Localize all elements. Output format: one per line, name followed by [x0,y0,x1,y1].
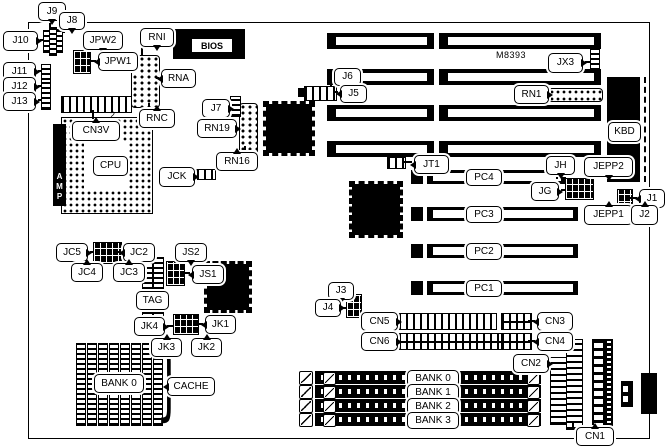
label-jpw2: JPW2 [83,31,123,50]
label-jc4: JC4 [71,263,103,282]
pc3-slot [427,207,578,221]
simm3-left-clip [323,400,336,413]
isa-slot-3-right [439,105,601,121]
label-jk2: JK2 [191,338,222,357]
pc2-slot-label: PC2 [466,243,502,260]
amp-socket-bar: AMP [53,124,66,206]
label-j7: J7 [202,99,230,118]
pc2-slot-cap [411,244,423,258]
label-j6: J6 [334,68,361,86]
cache-chip-1 [76,343,86,426]
label-jck: JCK [159,167,195,187]
simm2-left-tab [299,385,313,399]
external-port-pin-2 [623,396,628,402]
label-cn4: CN4 [537,332,573,351]
simm1-left-tab [299,371,313,385]
label-cn3v: CN3V [72,121,120,141]
simm2-left-clip [323,386,336,399]
isa-slot-1-left [327,33,434,49]
label-j4: J4 [315,299,341,317]
external-port [641,373,657,414]
label-cn2: CN2 [513,354,549,373]
label-cn6: CN6 [361,332,398,351]
label-cache: CACHE [167,377,215,396]
label-rn1: RN1 [514,85,549,104]
label-j5: J5 [340,85,367,103]
tag-ram-chip-2 [153,257,164,320]
external-port-stub [621,381,633,407]
simm3-right-clip [527,400,540,413]
simm2-right-clip [527,386,540,399]
isa-slot-3-left [327,105,434,121]
label-rna: RNA [161,69,196,88]
leader-cn1 [572,423,574,428]
qfp-chip-upper [263,101,315,156]
simm4-right-clip [527,414,540,427]
jpw-jumper-block [73,50,91,74]
label-js2: JS2 [175,243,207,262]
label-kbd: KBD [608,122,641,142]
label-j10: J10 [3,31,38,51]
label-rni: RNI [140,28,174,47]
label-j3: J3 [328,282,354,300]
label-js1: JS1 [192,265,224,284]
qfp-chip-chipset [349,181,403,238]
pc1-slot [427,281,578,295]
label-cache-bank0: BANK 0 [94,374,144,393]
simm1-left-clip [323,372,336,385]
simm3-left-tab [299,399,313,413]
motherboard-diagram: PC4 PC3 PC2 PC1 BIOS 2 AMP M8393 [0,0,666,446]
simm-bank3-label: BANK 3 [407,412,459,429]
label-cn3: CN3 [537,312,573,331]
pc2-slot [427,244,578,258]
pc3-slot-cap [411,207,423,221]
simm4-left-tab [299,413,313,427]
cn3v-connector [61,96,132,113]
cn5-connector [398,313,497,330]
isa-slot-4-right [439,141,601,157]
label-rn16: RN16 [216,152,258,171]
jh-jg-jumper-block [565,178,594,200]
simm4-left-clip [323,414,336,427]
label-rnc: RNC [139,109,175,128]
label-jk4: JK4 [134,317,165,336]
cn6-connector [398,333,502,350]
label-cpu: CPU [93,156,128,176]
pc3-slot-label: PC3 [466,206,502,223]
external-port-pin-1 [623,386,628,392]
pc1-slot-cap [411,281,423,295]
bios-chip-text: BIOS [192,39,232,52]
label-jc3: JC3 [113,263,145,282]
isa-slot-1-right [439,33,601,49]
jt1-connector [387,157,406,169]
label-j8: J8 [59,12,85,30]
pc1-slot-label: PC1 [466,280,502,297]
cn1-power-connector [592,339,613,430]
label-jepp2: JEPP2 [584,157,633,177]
label-rn19: RN19 [197,119,237,138]
board-marking-text: M8393 [496,50,526,60]
label-cn1: CN1 [576,427,614,446]
label-jg: JG [531,182,559,201]
j10-connector [56,29,63,53]
jx3-connector [590,48,600,71]
label-jepp1: JEPP1 [584,205,633,225]
label-jpw1: JPW1 [98,52,138,71]
cn3v-pin2-text: 2 [110,110,115,120]
leader-j6 [330,81,332,87]
label-cn5: CN5 [361,312,398,331]
label-j13: J13 [3,92,36,111]
label-j2: J2 [631,205,658,225]
kbd-chip-dashed-edge [644,77,646,182]
cn1-ladder [566,339,583,430]
label-tag: TAG [136,291,169,310]
label-jx3: JX3 [548,53,583,73]
label-jk3: JK3 [151,338,182,357]
label-jh: JH [546,156,575,175]
label-jt1: JT1 [414,155,449,174]
pc4-slot-label: PC4 [466,169,502,186]
simm1-right-clip [527,372,540,385]
